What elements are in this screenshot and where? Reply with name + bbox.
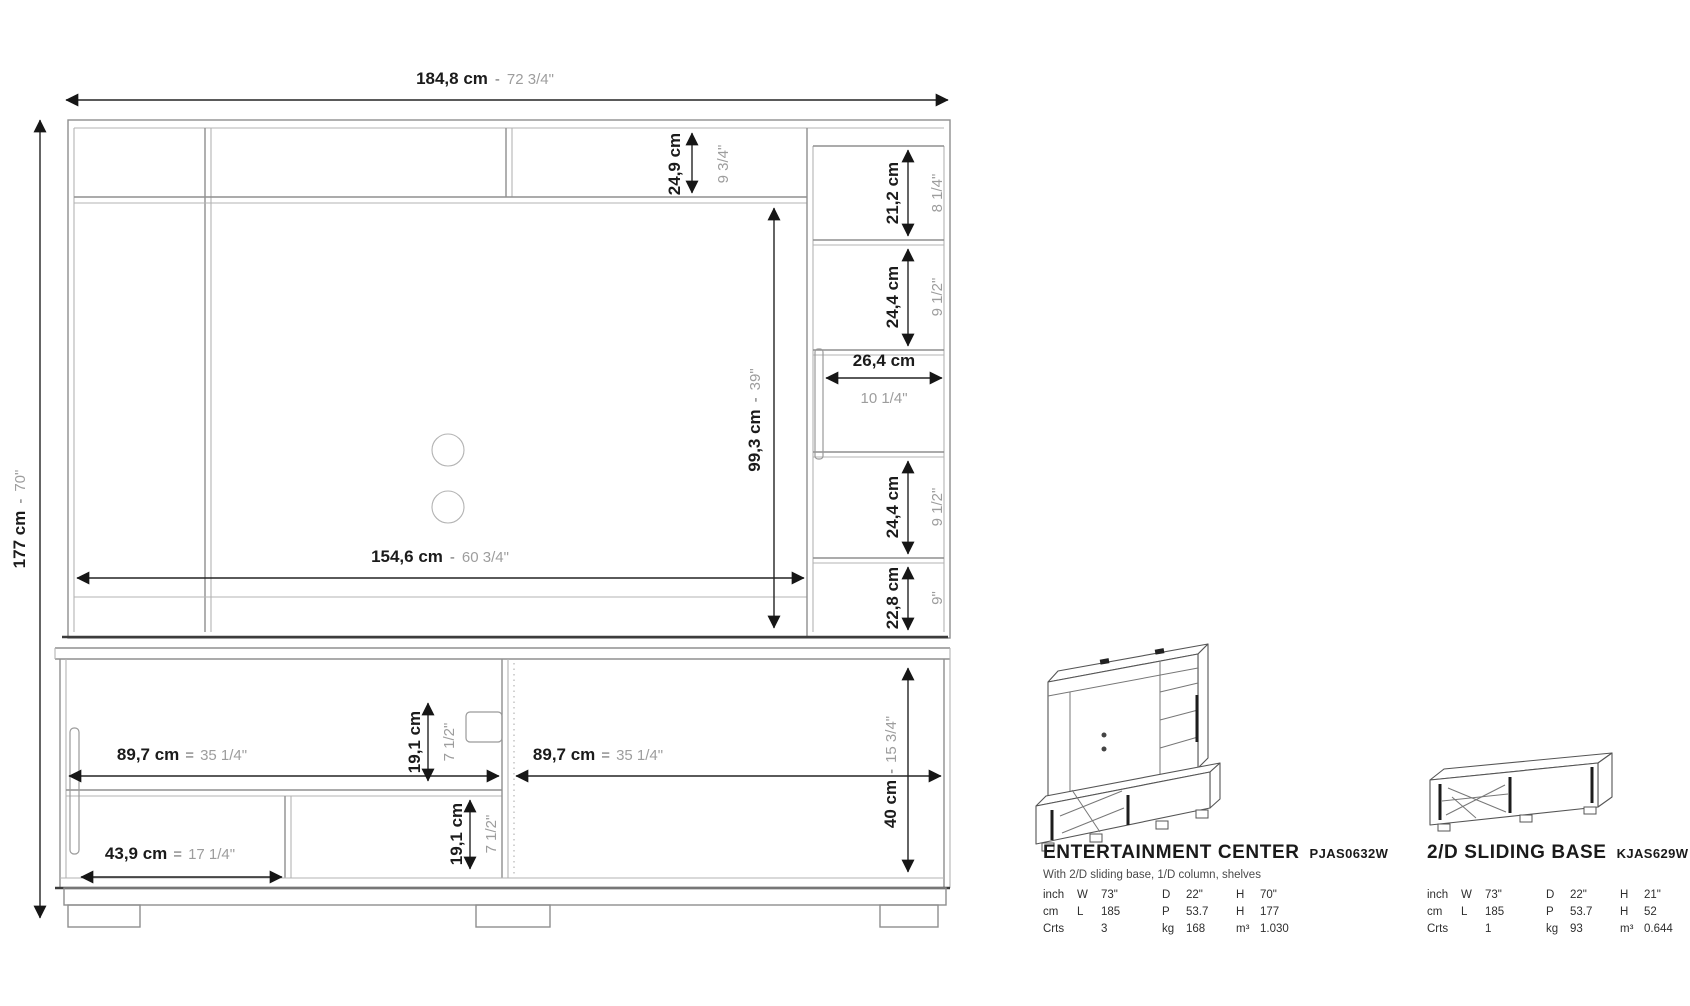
dim-base-right-width: 89,7 cm=35 1/4" [516,745,941,776]
door-edge-trim [70,728,79,854]
dim-tv-opening-height: 99,3 cm-39" [745,208,774,628]
dim-base-opening-height: 40 cm-15 3/4" [881,668,908,872]
dim-top-shelf-height: 24,9 cm 9 3/4" [665,133,732,195]
dim-label: 24,4 cm [883,266,902,328]
dim-label: 9 1/2" [929,278,946,317]
product-sku: KJAS629W [1617,846,1689,861]
foot [476,905,550,927]
spec-unit: H [1236,906,1260,918]
spec-row-label: Crts [1043,923,1077,935]
dim-label: 19,1 cm [447,803,466,865]
product-subtitle: With 2/D sliding base, 1/D column, shelv… [1043,869,1393,884]
dim-label: 9 3/4" [715,145,732,184]
spec-cell: 3 [1077,923,1162,935]
product-title: ENTERTAINMENT CENTER [1043,842,1300,863]
product-sku: PJAS0632W [1310,846,1389,861]
dim-label: 7 1/2" [483,815,500,854]
spec-value: 1 [1485,923,1491,935]
spec-cell: D22" [1546,889,1620,901]
spec-unit: D [1162,889,1186,901]
spec-unit: m³ [1236,923,1260,935]
foot [880,905,938,927]
spec-row: cm L185 P53.7 H52 [1427,906,1687,918]
spec-cell: H52 [1620,906,1690,918]
spec-unit: P [1546,906,1570,918]
spec-cell: H177 [1236,906,1321,918]
spec-value: 73" [1101,889,1118,901]
dim-label: 89,7 cm=35 1/4" [533,745,663,764]
dim-column-section2: 24,4 cm 9 1/2" [883,249,946,346]
spec-value: 73" [1485,889,1502,901]
feet [68,905,938,927]
spec-row: inch W73" D22" H21" [1427,889,1687,901]
dim-label: 7 1/2" [441,723,458,762]
product-subtitle [1427,869,1687,884]
spec-unit: W [1461,889,1485,901]
spec-value: 93 [1570,923,1583,935]
spec-value: 3 [1101,923,1107,935]
dim-label: 24,4 cm [883,476,902,538]
dim-drawer-width: 43,9 cm=17 1/4" [81,844,282,877]
spec-cell: 1 [1461,923,1546,935]
spec-cell: L185 [1077,906,1162,918]
spec-unit: m³ [1620,923,1644,935]
spec-cell: m³0.644 [1620,923,1690,935]
spec-row: Crts 3 kg168 m³1.030 [1043,923,1393,935]
spec-unit: H [1236,889,1260,901]
spec-value: 53.7 [1570,906,1592,918]
dim-label: 26,4 cm [853,351,915,370]
spec-unit: D [1546,889,1570,901]
dim-label: 43,9 cm=17 1/4" [105,844,235,863]
dim-niche-width: 26,4 cm 10 1/4" [826,351,942,407]
dim-label: 184,8 cm-72 3/4" [416,69,554,88]
spec-unit: H [1620,889,1644,901]
spec-cell: kg168 [1162,923,1236,935]
hutch-frame [68,120,950,638]
spec-unit: P [1162,906,1186,918]
spec-row-label: inch [1427,889,1461,901]
dim-label: 9 1/2" [929,488,946,527]
niche-trim [815,349,823,459]
spec-row: Crts 1 kg93 m³0.644 [1427,923,1687,935]
spec-cell: kg93 [1546,923,1620,935]
base-unit [55,637,950,905]
dim-label: 40 cm-15 3/4" [881,716,900,828]
dim-label: 9" [929,591,946,605]
spec-unit: L [1077,906,1101,918]
spec-value: 1.030 [1260,923,1289,935]
spec-unit: L [1461,906,1485,918]
spec-cell: W73" [1461,889,1546,901]
spec-value: 185 [1101,906,1120,918]
dim-label: 99,3 cm-39" [745,368,764,471]
sliding-base-illustration [1430,753,1612,831]
spec-value: 21" [1644,889,1661,901]
dim-label: 177 cm-70" [10,470,29,569]
dim-column-section3: 24,4 cm 9 1/2" [883,461,946,554]
spec-row: cm L185 P53.7 H177 [1043,906,1393,918]
spec-value: 22" [1186,889,1203,901]
spec-row-label: cm [1043,906,1077,918]
spec-value: 177 [1260,906,1279,918]
spec-unit: W [1077,889,1101,901]
dim-base-left-width: 89,7 cm=35 1/4" [69,745,499,776]
dim-base-upper-height: 19,1 cm 7 1/2" [405,703,458,781]
dim-overall-width: 184,8 cm-72 3/4" [66,69,948,100]
dim-tv-opening-width: 154,6 cm-60 3/4" [77,547,804,578]
spec-value: 22" [1570,889,1587,901]
dim-base-lower-height: 19,1 cm 7 1/2" [447,800,500,869]
foot [68,905,140,927]
spec-row-label: inch [1043,889,1077,901]
spec-cell: D22" [1162,889,1236,901]
dim-column-section1: 21,2 cm 8 1/4" [883,150,946,236]
spec-table: inch W73" D22" H70" cm L185 P53.7 H177 C… [1043,889,1393,935]
product-block-entertainment-center: ENTERTAINMENT CENTERPJAS0632W With 2/D s… [1043,842,1393,935]
dim-label: 19,1 cm [405,711,424,773]
spec-cell: P53.7 [1162,906,1236,918]
spec-unit: H [1620,906,1644,918]
spec-cell: H70" [1236,889,1321,901]
spec-value: 52 [1644,906,1657,918]
product-block-sliding-base: 2/D SLIDING BASEKJAS629W inch W73" D22" … [1427,842,1687,935]
drawer-handle [466,712,502,742]
spec-row-label: cm [1427,906,1461,918]
spec-value: 0.644 [1644,923,1673,935]
spec-cell: m³1.030 [1236,923,1321,935]
spec-sheet-page: { "palette": { "background": "#ffffff", … [0,0,1690,1006]
dim-label: 21,2 cm [883,162,902,224]
cable-holes [432,434,464,523]
spec-unit: kg [1162,923,1186,935]
dim-label: 10 1/4" [860,390,907,407]
dim-overall-height: 177 cm-70" [10,120,40,918]
spec-table: inch W73" D22" H21" cm L185 P53.7 H52 Cr… [1427,889,1687,935]
dim-label: 154,6 cm-60 3/4" [371,547,509,566]
spec-value: 53.7 [1186,906,1208,918]
spec-value: 168 [1186,923,1205,935]
dim-label: 22,8 cm [883,567,902,629]
spec-cell: P53.7 [1546,906,1620,918]
entertainment-center-illustration [1036,644,1220,851]
spec-cell: H21" [1620,889,1690,901]
product-title: 2/D SLIDING BASE [1427,842,1607,863]
spec-unit: kg [1546,923,1570,935]
dim-label: 8 1/4" [929,174,946,213]
dim-label: 24,9 cm [665,133,684,195]
spec-row-label: Crts [1427,923,1461,935]
spec-value: 185 [1485,906,1504,918]
dim-label: 89,7 cm=35 1/4" [117,745,247,764]
dim-column-section4: 22,8 cm 9" [883,567,946,630]
spec-value: 70" [1260,889,1277,901]
spec-cell: L185 [1461,906,1546,918]
spec-row: inch W73" D22" H70" [1043,889,1393,901]
spec-cell: W73" [1077,889,1162,901]
